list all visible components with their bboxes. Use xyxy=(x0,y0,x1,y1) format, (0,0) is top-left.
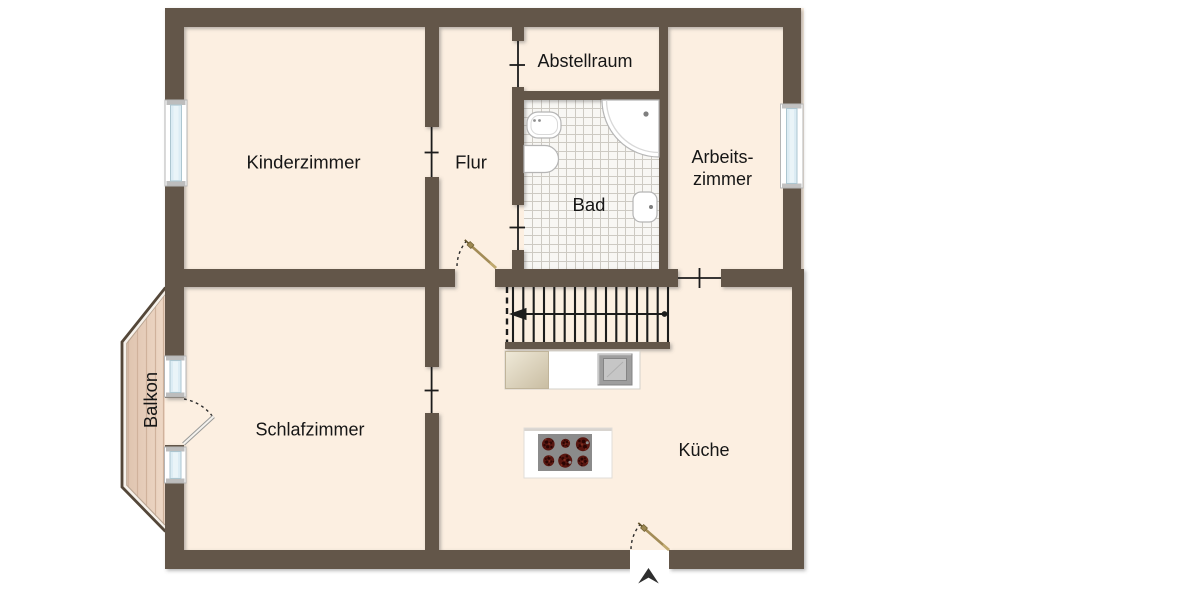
svg-text:Arbeits-: Arbeits- xyxy=(691,147,753,167)
svg-text:Küche: Küche xyxy=(678,440,729,460)
svg-text:Flur: Flur xyxy=(455,152,487,173)
svg-text:Kinderzimmer: Kinderzimmer xyxy=(246,152,360,173)
svg-text:Balkon: Balkon xyxy=(140,372,161,428)
svg-text:Abstellraum: Abstellraum xyxy=(537,51,632,71)
svg-text:Bad: Bad xyxy=(573,194,606,215)
svg-text:zimmer: zimmer xyxy=(693,169,752,189)
svg-text:Schlafzimmer: Schlafzimmer xyxy=(255,420,364,440)
